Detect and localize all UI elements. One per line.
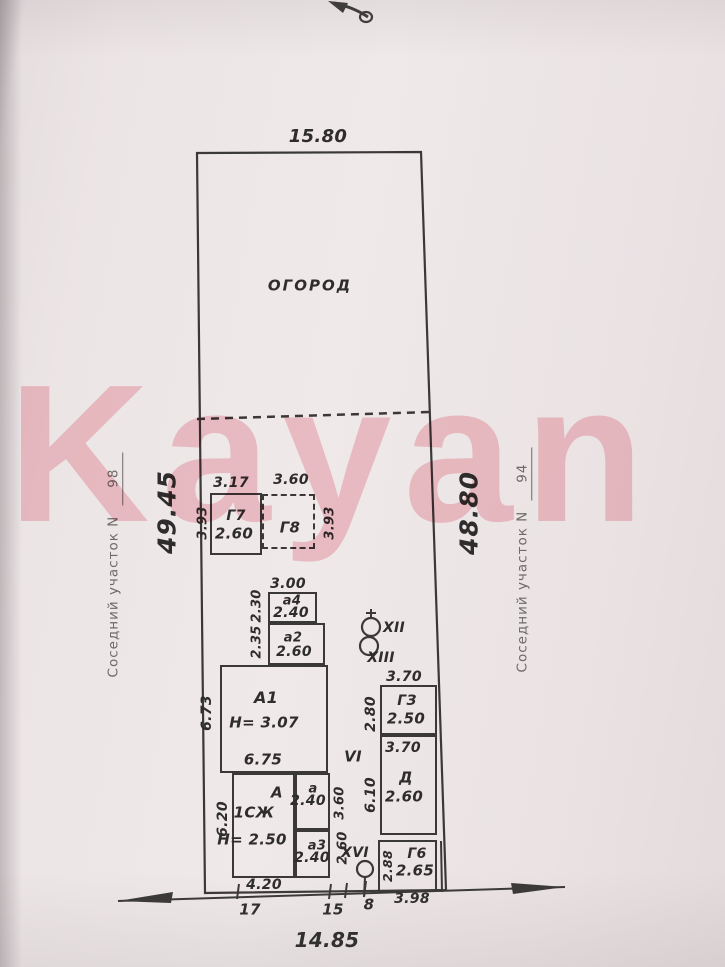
building-A-usage: 1СЖ (234, 806, 275, 821)
dim-g3-top: 3.70 (386, 670, 422, 684)
well-xvi-icon (357, 861, 373, 877)
building-d-name: Д (399, 771, 413, 786)
dim-g8-side: 3.93 (324, 506, 337, 539)
mark-xii: XII (383, 621, 405, 635)
garden-divider-dashed-line (197, 412, 430, 419)
left-neighbor-number: 98 (105, 453, 123, 506)
dim-g7-top: 3.17 (213, 476, 249, 490)
dim-g3-side: 2.80 (364, 696, 378, 732)
dim-a4-top: 3.00 (270, 577, 306, 591)
building-g3-name: ГЗ (397, 694, 416, 708)
building-a2-value: 2.60 (276, 645, 312, 659)
dim-plot-left-length: 49.45 (155, 470, 180, 554)
right-neighbor-label: Соседний участок N94 (516, 448, 530, 673)
street-arrow-right-icon (511, 883, 565, 894)
mark-vi: VI (344, 750, 362, 765)
dim-A1-bottom: 6.75 (244, 753, 282, 768)
building-g8-name: Г8 (280, 521, 301, 536)
right-neighbor-text: Соседний участок N (514, 511, 530, 673)
building-a2-name: а2 (284, 632, 302, 645)
scanned-site-plan: 15.80 14.85 ОГОРОД Соседний участок N98 … (0, 0, 725, 967)
building-g7-name: Г7 (226, 509, 245, 523)
dim-g6-side: 2.88 (382, 850, 395, 882)
well-xii-icon (362, 618, 380, 636)
dim-a-side: 3.60 (334, 786, 347, 819)
garden-label: ОГОРОД (268, 279, 352, 294)
dim-a2-side: 2.35 (251, 625, 264, 658)
building-g6-name: Г6 (407, 847, 426, 861)
dim-d-top: 3.70 (385, 741, 421, 755)
g6-boundary-double-line (441, 841, 442, 892)
building-A1-name: А1 (254, 690, 278, 706)
mark-xiii: XIII (367, 651, 395, 665)
dim-A1-side: 6.73 (200, 695, 214, 731)
dim-g7-side: 3.93 (197, 506, 210, 539)
building-A1-height: Н= 3.07 (229, 716, 298, 731)
building-g3-value: 2.50 (387, 712, 425, 727)
dim-plot-top-width: 15.80 (289, 128, 347, 146)
dim-plot-right-length: 48.80 (457, 471, 482, 555)
street-line (118, 887, 565, 901)
building-d-value: 2.60 (385, 790, 423, 805)
north-arrow-head-icon (328, 1, 348, 13)
dim-a3-side: 2.60 (337, 831, 350, 864)
building-a4-value: 2.40 (273, 606, 309, 620)
left-neighbor-label: Соседний участок N98 (107, 453, 121, 678)
dim-d-side: 6.10 (364, 777, 378, 813)
dim-g6-bottom: 3.98 (394, 892, 430, 906)
segment-8: 8 (364, 898, 375, 913)
building-g7-value: 2.60 (215, 527, 253, 542)
right-neighbor-number: 94 (514, 448, 532, 501)
dim-A-bottom: 4.20 (246, 878, 282, 892)
segment-17: 17 (239, 903, 260, 918)
dim-a4-side: 2.30 (251, 589, 264, 622)
building-g6-value: 2.65 (396, 864, 434, 879)
dim-g8-top: 3.60 (273, 473, 309, 487)
segment-15: 15 (322, 903, 343, 918)
well-xii-cross-icon (366, 609, 376, 618)
well-xvi-stem (364, 877, 365, 897)
building-A (232, 773, 295, 878)
dim-A-side: 6.20 (216, 801, 230, 837)
building-a-value: 2.40 (290, 794, 326, 808)
building-a3-value: 2.40 (294, 851, 330, 865)
dim-plot-bottom-width: 14.85 (295, 930, 360, 950)
left-neighbor-text: Соседний участок N (105, 516, 121, 678)
building-A-name: А (271, 786, 283, 801)
